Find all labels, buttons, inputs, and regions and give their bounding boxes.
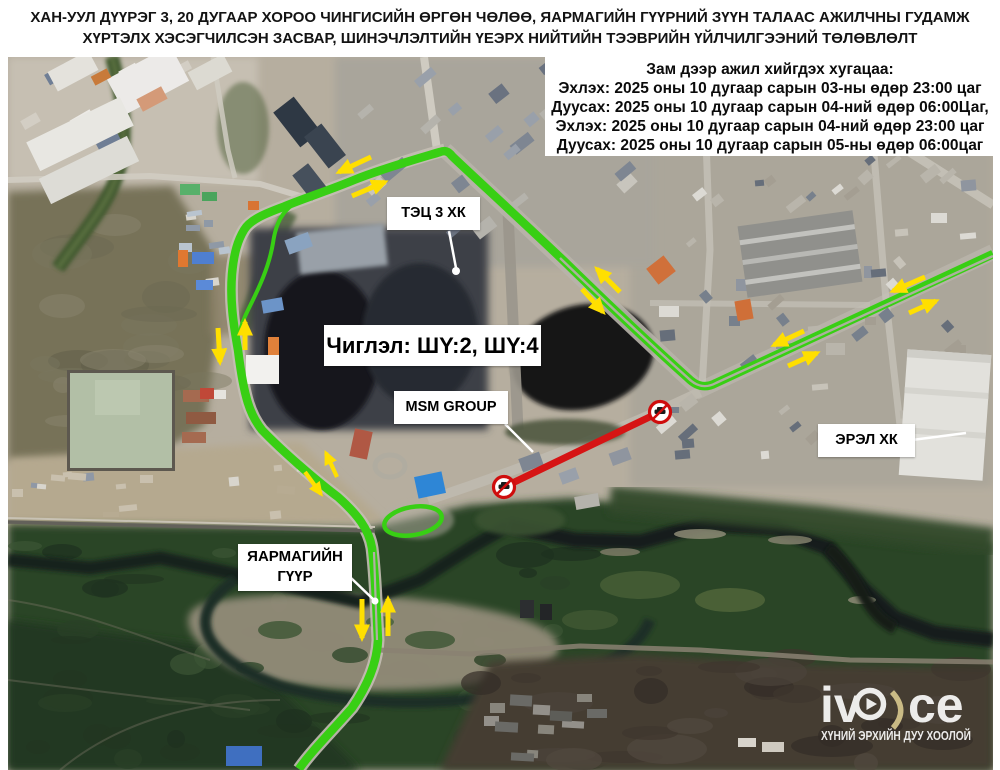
svg-text:ce: ce (908, 677, 964, 733)
svg-text:ХҮНИЙ ЭРХИЙН ДУУ ХООЛОЙ: ХҮНИЙ ЭРХИЙН ДУУ ХООЛОЙ (821, 728, 971, 743)
